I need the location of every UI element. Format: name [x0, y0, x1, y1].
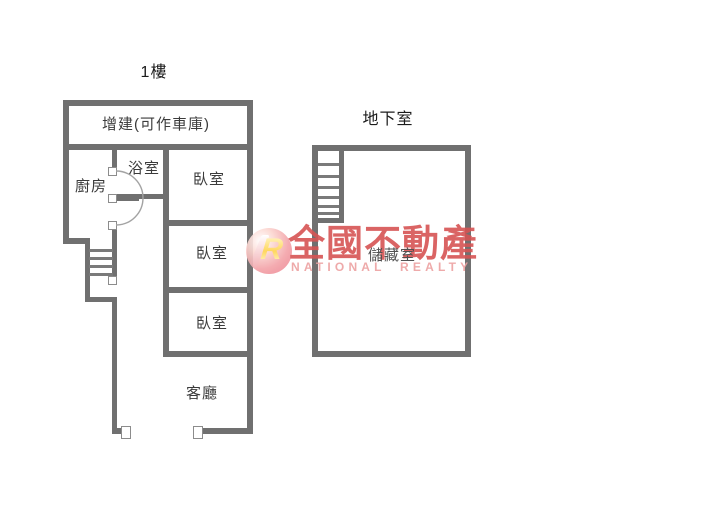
stair-tread: [89, 265, 113, 268]
basement-wall-bottom: [312, 351, 471, 357]
room-label-bedroom3: 臥室: [196, 315, 228, 332]
basement-wall-right: [465, 145, 471, 357]
realty-watermark: R 全國不動產 NATIONAL REALTY: [0, 0, 701, 506]
entry-door-marker: [121, 426, 131, 439]
floor1-title: 1樓: [141, 64, 168, 82]
room-label-bathroom: 浴室: [128, 160, 160, 177]
floor1-wall-left: [63, 100, 69, 244]
room-label-storage: 儲藏室: [368, 247, 416, 264]
floor1-wall-bedroom-divider1: [163, 220, 253, 226]
basement-wall-top: [312, 145, 471, 151]
floor1-wall-bedroom-divider2: [163, 287, 253, 293]
floor1-stair-wall-left: [85, 238, 90, 302]
room-label-bedroom1: 臥室: [193, 171, 225, 188]
stair-tread: [318, 186, 339, 189]
stair-tread: [89, 257, 113, 260]
stair-tread: [318, 163, 339, 166]
floor1-wall-top: [63, 100, 253, 106]
stair-tread: [318, 175, 339, 178]
basement-stair-wall-right: [339, 145, 344, 222]
room-label-addition: 增建(可作車庫): [102, 116, 210, 133]
floor1-wall-addition-bottom: [63, 144, 253, 150]
stair-tread: [318, 212, 339, 215]
floor1-wall-lower-left: [112, 302, 117, 434]
entry-door-marker: [193, 426, 203, 439]
basement-title: 地下室: [362, 111, 413, 129]
floor1-wall-right: [247, 100, 253, 434]
floorplan-image: 1樓 增建(可作車庫) 浴室 廚房 臥室 臥室 臥室 客廳 地下室: [0, 0, 701, 506]
room-label-bedroom2: 臥室: [196, 245, 228, 262]
stair-tread: [318, 196, 339, 199]
logo-letter: R: [259, 233, 284, 266]
room-label-kitchen: 廚房: [75, 178, 107, 195]
floor1-wall-bedroom3-bottom: [163, 351, 253, 357]
basement-stair-wall-bottom: [312, 218, 344, 223]
stair-tread: [89, 249, 113, 252]
floor1-wall-bedroom-left: [163, 144, 169, 357]
room-label-living: 客廳: [186, 385, 218, 402]
stair-tread: [318, 205, 339, 208]
stair-end-marker: [108, 276, 117, 285]
floor1-wall-bottom-right-segment: [202, 428, 253, 434]
